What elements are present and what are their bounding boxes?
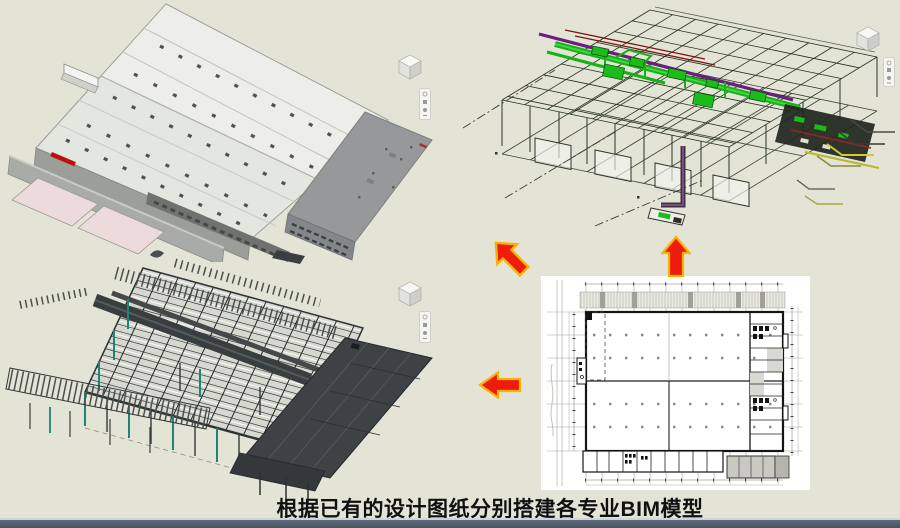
slide: 根据已有的设计图纸分别搭建各专业BIM模型 — [0, 0, 900, 528]
arch-roof-duct — [61, 64, 98, 93]
navigation-bar-icon — [883, 57, 895, 87]
structure-model-image — [0, 243, 452, 515]
arrow-to-mep-model — [661, 235, 691, 278]
structure-top-chip — [272, 250, 305, 264]
structure-top-curl — [150, 250, 164, 257]
viewcube-icon — [398, 281, 422, 307]
footer-bar — [0, 520, 900, 528]
navigation-bar-icon — [419, 311, 431, 343]
floor-plan-image — [541, 276, 810, 490]
viewcube-icon — [398, 54, 422, 80]
mep-model-image — [455, 0, 900, 250]
architecture-model-image — [0, 0, 452, 262]
navigation-bar-icon — [419, 88, 431, 120]
arrow-to-structure-model — [478, 371, 522, 399]
viewcube-icon — [856, 26, 880, 52]
plan-hatch-strip — [580, 292, 785, 308]
